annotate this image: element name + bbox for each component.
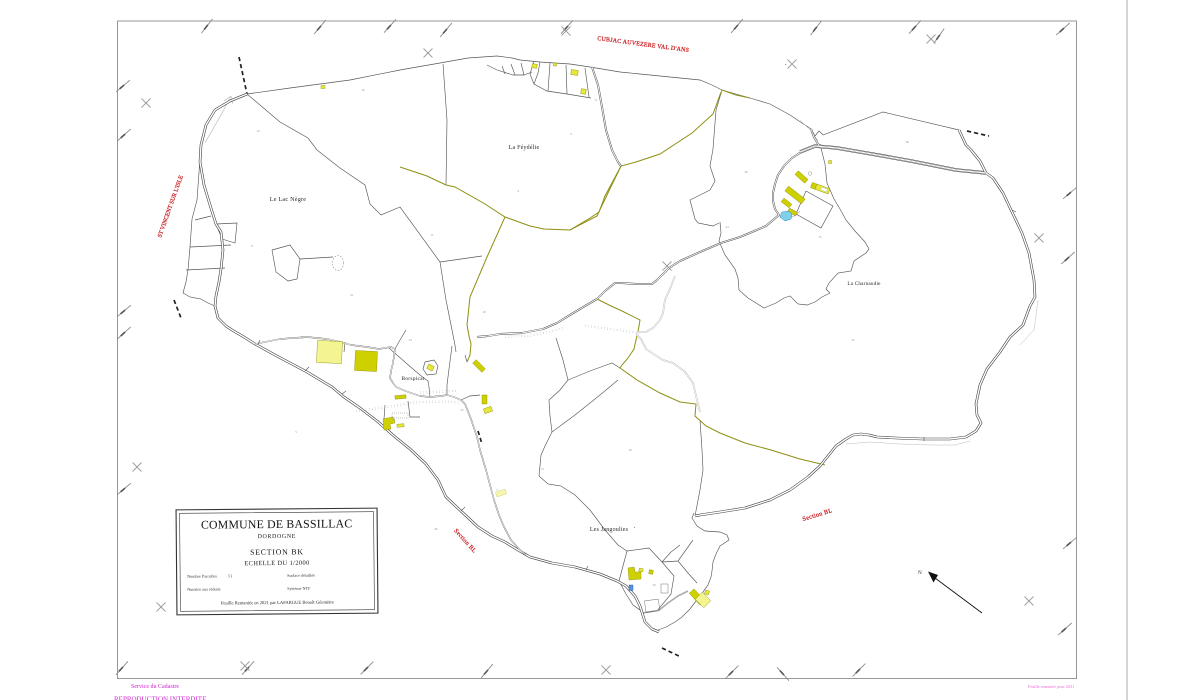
svg-text:Nombre Parcelles: Nombre Parcelles	[187, 574, 217, 579]
svg-text:16: 16	[361, 88, 365, 92]
svg-text:SECTION BK: SECTION BK	[250, 547, 304, 556]
svg-text:25: 25	[460, 408, 464, 412]
svg-text:13: 13	[540, 467, 544, 471]
svg-text:ECHELLE DU 1/2000: ECHELLE DU 1/2000	[244, 560, 309, 568]
svg-text:Les Jangoulies: Les Jangoulies	[590, 527, 629, 533]
svg-text:Système NTF: Système NTF	[287, 586, 311, 591]
svg-text:14: 14	[408, 338, 412, 342]
svg-text:Borspicat: Borspicat	[401, 376, 424, 382]
svg-text:24: 24	[725, 225, 729, 229]
svg-text:DORDOGNE: DORDOGNE	[258, 534, 297, 540]
svg-text:Surface détaillée: Surface détaillée	[287, 573, 315, 578]
svg-text:Le Lac Nègre: Le Lac Nègre	[270, 196, 306, 203]
svg-text:12: 12	[256, 129, 260, 133]
svg-text:Feuille Remaniée en 2021 par L: Feuille Remaniée en 2021 par LAFARGUE Be…	[221, 600, 334, 606]
svg-text:19: 19	[482, 310, 486, 314]
svg-text:10: 10	[628, 448, 632, 452]
svg-text:REPRODUCTION INTERDITE: REPRODUCTION INTERDITE	[114, 696, 206, 700]
svg-text:22: 22	[851, 338, 855, 342]
svg-text:COMMUNE DE BASSILLAC: COMMUNE DE BASSILLAC	[201, 516, 353, 531]
svg-text:La Féydélie: La Féydélie	[509, 145, 540, 151]
svg-text:21: 21	[350, 293, 354, 297]
svg-text:Feuille remaniée pour 2021: Feuille remaniée pour 2021	[1028, 684, 1074, 689]
svg-text:N: N	[918, 570, 922, 576]
svg-text:15: 15	[818, 235, 822, 239]
svg-text:18: 18	[905, 140, 909, 144]
svg-text:30: 30	[744, 170, 748, 174]
svg-text:45: 45	[434, 527, 438, 531]
svg-text:La Charnaudie: La Charnaudie	[847, 281, 881, 287]
svg-text:33: 33	[652, 583, 656, 587]
svg-text:Service du Cadastre: Service du Cadastre	[131, 684, 179, 690]
svg-text:Numéro aux réduits: Numéro aux réduits	[187, 586, 221, 591]
svg-text:51: 51	[228, 573, 232, 578]
